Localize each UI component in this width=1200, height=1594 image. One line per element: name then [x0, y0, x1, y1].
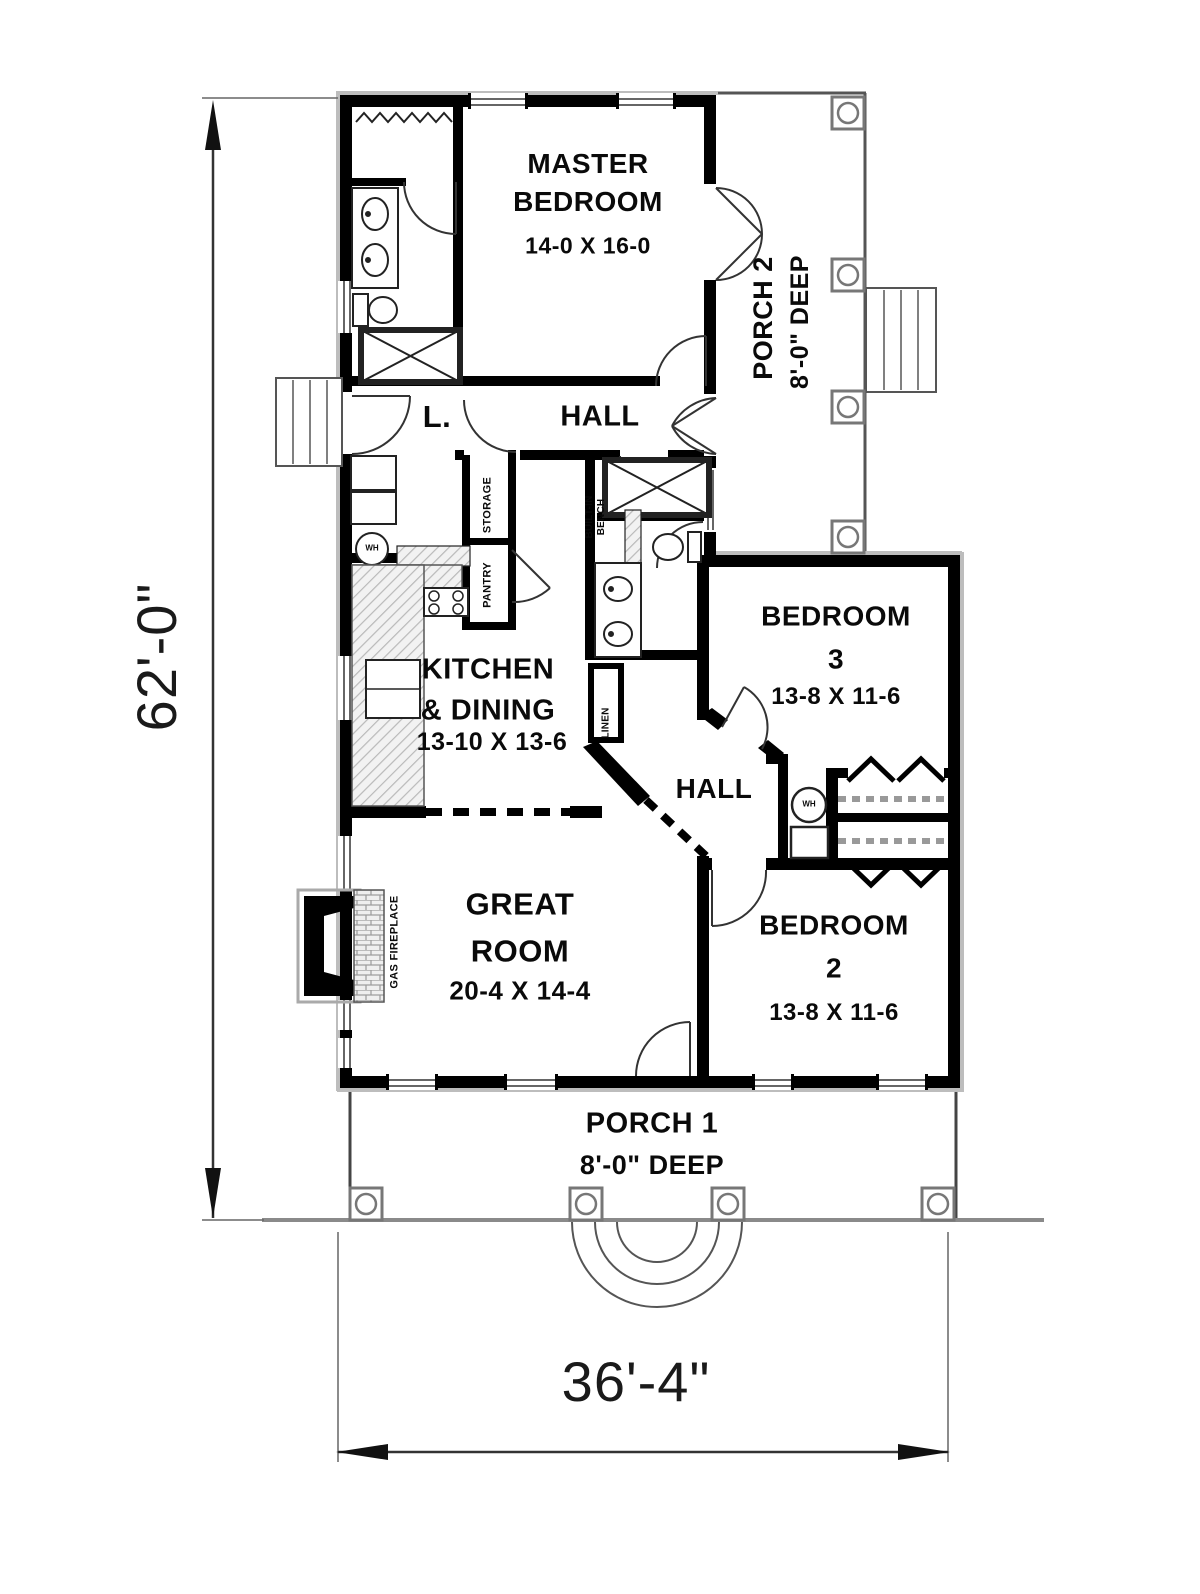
room-label-kitchen: KITCHEN & DINING: [421, 649, 556, 730]
column-icon: [570, 1188, 602, 1220]
column-icon: [832, 259, 864, 291]
hall2-water-heater: [791, 788, 828, 858]
room-label-storage: STORAGE: [481, 477, 496, 533]
room-label-pantry: PANTRY: [481, 562, 496, 608]
room-label-built-in-bench: BUILT-IN BENCH: [584, 495, 608, 538]
closet-rod-icon: [356, 113, 452, 122]
room-depth-porch1: 8'-0" DEEP: [580, 1147, 724, 1183]
porch2-steps: [866, 288, 936, 392]
master-bath-fixtures: [352, 113, 460, 382]
room-size-master-bedroom: 14-0 X 16-0: [525, 230, 651, 261]
room-label-hall-lower: HALL: [676, 770, 753, 808]
side-steps-left: [276, 378, 342, 466]
room-label-porch2: PORCH 2: [745, 256, 781, 380]
dryer-icon: [351, 492, 396, 524]
label-water-heater-laundry: WH: [365, 544, 378, 555]
toilet-icon: [353, 294, 368, 326]
room-label-gas-fireplace: GAS FIREPLACE: [388, 895, 403, 988]
room-label-hall-upper: HALL: [560, 397, 639, 436]
toilet-icon: [653, 534, 683, 560]
floor-plan-page: MASTER BEDROOM 14-0 X 16-0 PORCH 2 8'-0"…: [0, 0, 1200, 1594]
dimension-overall-width: 36'-4": [562, 1344, 711, 1420]
room-label-linen: LINEN: [599, 708, 613, 739]
room-label-bedroom2: BEDROOM 2: [759, 904, 909, 991]
washer-icon: [351, 456, 396, 490]
room-size-great-room: 20-4 X 14-4: [449, 973, 590, 1008]
room-size-bedroom3: 13-8 X 11-6: [771, 681, 901, 713]
room-size-bedroom2: 13-8 X 11-6: [769, 997, 899, 1029]
hearth-icon: [354, 890, 384, 1002]
room-label-master-bedroom: MASTER BEDROOM: [513, 145, 663, 221]
room-depth-porch2: 8'-0" DEEP: [784, 255, 818, 389]
column-icon: [832, 521, 864, 553]
bench-icon: [625, 510, 641, 565]
column-icon: [832, 391, 864, 423]
bifold-door-icon: [848, 759, 944, 781]
hall-bath-fixtures: [595, 460, 709, 657]
dimension-overall-height: 62'-0": [119, 583, 195, 732]
column-icon: [712, 1188, 744, 1220]
room-label-great-room: GREAT ROOM: [466, 882, 575, 975]
room-label-bedroom3: BEDROOM 3: [761, 595, 911, 682]
room-label-porch1: PORCH 1: [586, 1104, 718, 1143]
column-icon: [832, 97, 864, 129]
column-icon: [350, 1188, 382, 1220]
column-icon: [922, 1188, 954, 1220]
cased-openings: [426, 800, 706, 856]
label-water-heater-hall: WH: [802, 800, 815, 811]
front-steps: [572, 1222, 742, 1307]
room-size-kitchen: 13-10 X 13-6: [417, 726, 568, 760]
room-label-laundry: L.: [423, 396, 452, 438]
